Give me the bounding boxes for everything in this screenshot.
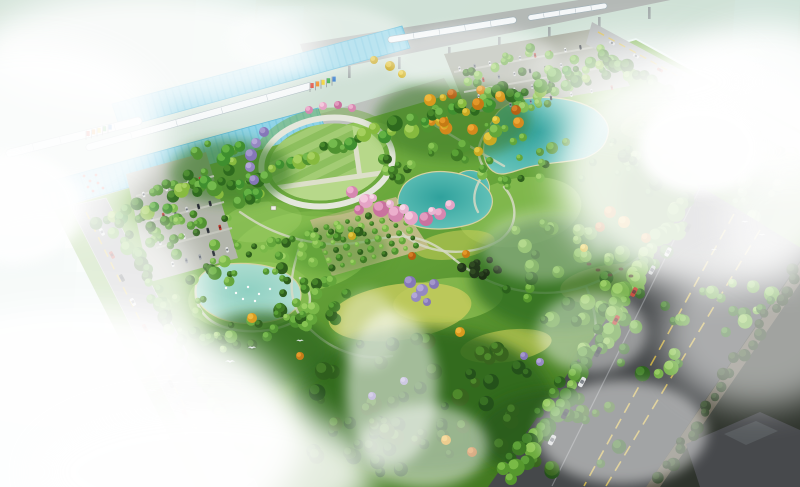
tree-highlight: [466, 369, 472, 375]
tree-highlight: [263, 268, 267, 272]
tree-highlight: [260, 245, 265, 250]
tree-highlight: [379, 244, 382, 247]
tree-highlight: [555, 377, 562, 384]
tree-highlight: [327, 276, 333, 282]
tree-highlight: [224, 278, 229, 283]
tree-highlight: [424, 298, 429, 303]
water-bird: [254, 300, 256, 302]
tree-highlight: [252, 244, 255, 247]
tree-highlight: [358, 249, 361, 252]
water-bird: [247, 286, 249, 288]
tree-highlight: [428, 143, 434, 149]
tree-highlight: [250, 175, 256, 181]
tree-highlight: [289, 236, 293, 240]
park-aerial-rendering: [0, 0, 800, 487]
tree-highlight: [276, 238, 280, 242]
tree-highlight: [306, 106, 311, 111]
tree-highlight: [485, 123, 489, 127]
tree-highlight: [537, 148, 542, 153]
tree-highlight: [355, 205, 361, 211]
tree-highlight: [261, 171, 268, 178]
tree-highlight: [222, 215, 226, 219]
tree-highlight: [320, 102, 325, 107]
tree-highlight: [225, 331, 232, 338]
tree-highlight: [519, 134, 524, 139]
tree-highlight: [304, 231, 309, 236]
tree-highlight: [506, 473, 513, 480]
tree-highlight: [253, 189, 259, 195]
tree-highlight: [345, 219, 348, 222]
tree-highlight: [235, 243, 239, 247]
tree-highlight: [360, 256, 364, 260]
tree-highlight: [536, 174, 541, 179]
tree-highlight: [267, 237, 273, 243]
tree-highlight: [400, 204, 406, 210]
tree-highlight: [521, 352, 526, 357]
grazing-animal: [629, 275, 634, 278]
tree-highlight: [661, 301, 667, 307]
tree-highlight: [479, 165, 484, 170]
tree-highlight: [324, 251, 327, 254]
tree-highlight: [310, 233, 315, 238]
tree-highlight: [505, 184, 508, 187]
tree-highlight: [248, 313, 254, 319]
tree-highlight: [382, 251, 385, 254]
tree-highlight: [247, 340, 253, 346]
tree-highlight: [429, 207, 434, 212]
tree-highlight: [456, 327, 462, 333]
tree-highlight: [395, 162, 399, 166]
tree-highlight: [182, 183, 187, 188]
tree-highlight: [440, 94, 444, 98]
tree-highlight: [276, 160, 281, 165]
tree-highlight: [263, 332, 269, 338]
tree-highlight: [403, 246, 406, 249]
grazing-animal: [596, 269, 601, 272]
tree-highlight: [399, 237, 403, 241]
tree-highlight: [389, 166, 395, 172]
tree-highlight: [406, 114, 413, 121]
tree-highlight: [334, 233, 339, 238]
tree-highlight: [412, 292, 418, 298]
tree-highlight: [334, 221, 338, 225]
tree-highlight: [487, 100, 493, 106]
flag: [311, 83, 314, 88]
tree-highlight: [355, 216, 358, 219]
tree-highlight: [329, 265, 333, 269]
tree-highlight: [463, 108, 468, 113]
tree-highlight: [355, 242, 358, 245]
tree-highlight: [205, 141, 209, 145]
tree-highlight: [268, 165, 273, 170]
tree-highlight: [331, 240, 334, 243]
tree-highlight: [282, 238, 288, 244]
mist-cloud: [338, 290, 398, 370]
tree-highlight: [372, 255, 375, 258]
tree-highlight: [368, 246, 372, 250]
tree-highlight: [547, 142, 554, 149]
tree-highlight: [380, 218, 383, 221]
water-bird: [242, 298, 244, 300]
tree-highlight: [292, 299, 297, 304]
tree-highlight: [636, 367, 645, 376]
tree-highlight: [425, 94, 432, 101]
tree-highlight: [336, 254, 340, 258]
water-bird: [269, 288, 271, 290]
tree-highlight: [411, 236, 414, 239]
tree-highlight: [272, 269, 276, 273]
tree-highlight: [515, 92, 521, 98]
tree-highlight: [334, 247, 337, 250]
tree-highlight: [503, 414, 511, 422]
tree-highlight: [458, 263, 463, 268]
tree-highlight: [349, 232, 354, 237]
tree-highlight: [407, 160, 412, 165]
tree-highlight: [316, 363, 326, 373]
tree-highlight: [567, 380, 573, 386]
tree-highlight: [297, 352, 302, 357]
tree-highlight: [496, 91, 502, 97]
tree-highlight: [194, 221, 198, 225]
flag: [316, 81, 319, 86]
tree-highlight: [270, 325, 275, 330]
tree-highlight: [168, 191, 175, 198]
tree-highlight: [475, 346, 484, 355]
tree-highlight: [235, 142, 241, 148]
tree-highlight: [479, 272, 484, 277]
tree-highlight: [514, 118, 520, 124]
tree-highlight: [183, 170, 189, 176]
tree-highlight: [218, 178, 223, 183]
flag: [322, 80, 325, 85]
tree-highlight: [369, 123, 376, 130]
tree-highlight: [526, 443, 536, 453]
tree-highlight: [458, 140, 465, 147]
tree-highlight: [397, 231, 400, 234]
tree-highlight: [522, 433, 532, 443]
tree-highlight: [365, 239, 368, 242]
car-glass: [530, 100, 532, 102]
tree-highlight: [277, 263, 284, 270]
tree-highlight: [409, 252, 414, 257]
tree-highlight: [473, 98, 480, 105]
tree-highlight: [512, 105, 518, 111]
tree-highlight: [187, 222, 192, 227]
tree-highlight: [549, 388, 555, 394]
tree-highlight: [452, 149, 459, 156]
tree-highlight: [307, 314, 313, 320]
tree-highlight: [209, 267, 217, 275]
tree-highlight: [210, 240, 217, 247]
tree-highlight: [529, 105, 533, 109]
tree-highlight: [502, 125, 506, 129]
tree-highlight: [535, 99, 539, 103]
tree-highlight: [534, 408, 540, 414]
tree-highlight: [510, 138, 514, 142]
tree-highlight: [507, 404, 515, 412]
tree-highlight: [421, 118, 426, 123]
car-glass: [509, 104, 511, 106]
tree-highlight: [293, 155, 302, 164]
tree-highlight: [162, 180, 168, 186]
tree-highlight: [458, 99, 463, 104]
tree-highlight: [280, 290, 285, 295]
tree-highlight: [300, 278, 305, 283]
tree-highlight: [210, 258, 214, 262]
tree-highlight: [301, 285, 306, 290]
mist-cloud: [228, 4, 408, 76]
tree-highlight: [372, 228, 375, 231]
tree-highlight: [348, 226, 351, 229]
flag: [333, 77, 336, 82]
tree-highlight: [435, 108, 442, 115]
tree-highlight: [600, 280, 607, 287]
tree-highlight: [343, 244, 347, 248]
tree-highlight: [394, 223, 397, 226]
tree-highlight: [310, 258, 314, 262]
tree-highlight: [405, 276, 412, 283]
tree-highlight: [360, 195, 368, 203]
tree-highlight: [388, 116, 397, 125]
tree-highlight: [307, 152, 315, 160]
tree-highlight: [387, 200, 392, 205]
tree-highlight: [387, 234, 390, 237]
tree-highlight: [329, 303, 334, 308]
tree-highlight: [201, 169, 206, 174]
tree-highlight: [654, 369, 660, 375]
tree-highlight: [480, 397, 489, 406]
tree-highlight: [420, 213, 428, 221]
tree-highlight: [340, 145, 345, 150]
tree-highlight: [484, 353, 491, 360]
mist-cloud: [360, 404, 488, 487]
tree-highlight: [506, 453, 513, 460]
tree-highlight: [440, 117, 446, 123]
tree-highlight: [150, 202, 156, 208]
tree-highlight: [300, 311, 304, 315]
tree-highlight: [379, 131, 387, 139]
tree-highlight: [350, 260, 353, 263]
tree-highlight: [193, 229, 197, 233]
tree-highlight: [491, 342, 498, 349]
water-bird: [225, 287, 227, 289]
tree-highlight: [191, 147, 197, 153]
tree-highlight: [200, 176, 208, 184]
tree-highlight: [222, 145, 230, 153]
tree-highlight: [236, 180, 241, 185]
tree-highlight: [276, 303, 282, 309]
tree-highlight: [246, 149, 253, 156]
tree-highlight: [370, 221, 373, 224]
tree-highlight: [246, 162, 252, 168]
tree-highlight: [417, 284, 424, 291]
scene-svg: [0, 0, 800, 487]
tree-highlight: [329, 418, 337, 426]
tree-highlight: [246, 252, 250, 256]
tree-highlight: [329, 139, 338, 148]
tree-highlight: [486, 157, 490, 161]
tree-highlight: [308, 302, 315, 309]
tree-highlight: [497, 462, 505, 470]
tree-highlight: [345, 138, 353, 146]
tree-highlight: [311, 288, 318, 295]
tree-highlight: [503, 285, 508, 290]
tree-highlight: [246, 195, 252, 201]
tree-highlight: [227, 180, 233, 186]
tree-highlight: [312, 279, 318, 285]
water-bird: [258, 293, 260, 295]
tree-highlight: [509, 459, 519, 469]
gazebo: [271, 206, 276, 210]
tree-highlight: [484, 374, 493, 383]
viaduct-column: [648, 7, 651, 19]
mist-cloud: [387, 26, 557, 90]
tree-highlight: [545, 461, 554, 470]
tree-highlight: [374, 202, 383, 211]
tree-highlight: [347, 186, 354, 193]
tree-highlight: [383, 155, 388, 160]
tree-highlight: [370, 194, 375, 199]
tree-highlight: [179, 234, 183, 238]
tree-highlight: [701, 401, 707, 407]
tree-highlight: [701, 409, 706, 414]
mist-cloud: [537, 292, 647, 372]
tree-highlight: [328, 229, 332, 233]
tree-highlight: [430, 279, 436, 285]
tree-highlight: [227, 271, 231, 275]
tree-highlight: [389, 241, 392, 244]
tree-highlight: [358, 128, 366, 136]
tree-highlight: [228, 322, 232, 326]
tree-highlight: [513, 441, 521, 449]
tree-highlight: [219, 256, 226, 263]
tree-highlight: [320, 142, 325, 147]
tree-highlight: [275, 252, 280, 257]
car-glass: [531, 86, 533, 88]
tree-highlight: [234, 197, 241, 204]
tree-highlight: [538, 159, 542, 163]
tree-highlight: [326, 258, 329, 261]
tree-highlight: [336, 225, 341, 230]
tree-highlight: [490, 125, 498, 133]
tree-highlight: [163, 204, 169, 210]
tree-highlight: [518, 175, 522, 179]
tree-highlight: [612, 283, 623, 294]
tree-highlight: [446, 200, 452, 206]
tree-highlight: [280, 275, 284, 279]
tree-highlight: [274, 311, 278, 315]
tree-highlight: [354, 227, 360, 233]
tree-highlight: [494, 439, 503, 448]
tree-highlight: [365, 213, 369, 217]
tree-highlight: [428, 110, 435, 117]
tree-highlight: [463, 250, 468, 255]
tree-highlight: [453, 389, 463, 399]
tree-highlight: [506, 89, 514, 97]
mist-cloud: [537, 380, 707, 484]
tree-highlight: [406, 227, 410, 231]
tree-highlight: [390, 174, 394, 178]
tree-highlight: [358, 223, 362, 227]
tree-highlight: [340, 263, 343, 266]
tree-highlight: [429, 151, 433, 155]
tree-highlight: [298, 242, 304, 248]
tree-highlight: [448, 89, 454, 95]
tree-highlight: [469, 262, 475, 268]
tree-highlight: [537, 358, 542, 363]
tree-highlight: [150, 189, 155, 194]
tree-highlight: [493, 116, 498, 121]
tree-highlight: [392, 248, 396, 252]
grazing-animal: [608, 274, 613, 277]
tree-highlight: [310, 385, 320, 395]
tree-highlight: [260, 127, 266, 133]
tree-highlight: [174, 217, 178, 221]
tree-highlight: [375, 235, 379, 239]
tree-highlight: [231, 270, 235, 274]
tree-highlight: [324, 224, 327, 227]
tree-highlight: [314, 228, 317, 231]
tree-highlight: [301, 303, 307, 309]
tree-highlight: [382, 225, 386, 229]
tree-highlight: [190, 211, 194, 215]
tree-highlight: [503, 177, 508, 182]
tree-highlight: [498, 177, 503, 182]
tree-highlight: [521, 89, 526, 94]
tree-highlight: [348, 253, 351, 256]
tree-highlight: [468, 124, 474, 130]
tree-highlight: [252, 138, 258, 144]
tree-highlight: [342, 289, 348, 295]
tree-highlight: [512, 361, 520, 369]
tree-highlight: [207, 181, 216, 190]
tree-highlight: [193, 187, 199, 193]
tree-highlight: [160, 216, 166, 222]
tree-highlight: [523, 369, 529, 375]
tree-highlight: [474, 147, 479, 152]
tree-highlight: [600, 271, 608, 279]
tree-highlight: [283, 314, 287, 318]
tree-highlight: [284, 277, 288, 281]
tree-highlight: [349, 104, 354, 109]
flag: [327, 78, 330, 83]
tree-highlight: [335, 101, 340, 106]
water-bird: [235, 292, 237, 294]
tree-highlight: [470, 269, 476, 275]
tree-highlight: [524, 294, 529, 299]
tree-highlight: [224, 165, 231, 172]
mist-cloud: [482, 210, 606, 282]
tree-highlight: [382, 166, 388, 172]
tree-highlight: [413, 243, 416, 246]
tree-highlight: [517, 155, 521, 159]
